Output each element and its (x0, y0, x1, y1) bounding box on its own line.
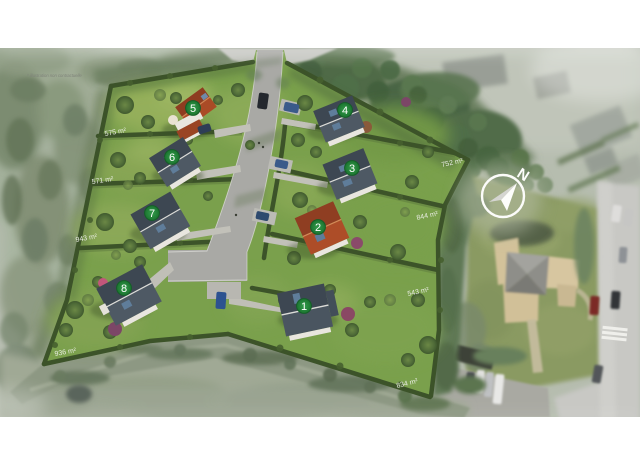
svg-text:2: 2 (315, 222, 321, 234)
svg-text:4: 4 (342, 105, 348, 117)
svg-text:5: 5 (190, 103, 196, 115)
svg-text:7: 7 (149, 208, 155, 220)
svg-text:3: 3 (349, 163, 355, 175)
svg-text:6: 6 (169, 152, 175, 164)
svg-text:1: 1 (301, 301, 307, 313)
svg-text:8: 8 (121, 283, 127, 295)
svg-text:* illustration non contractuel: * illustration non contractuelle (27, 73, 82, 78)
